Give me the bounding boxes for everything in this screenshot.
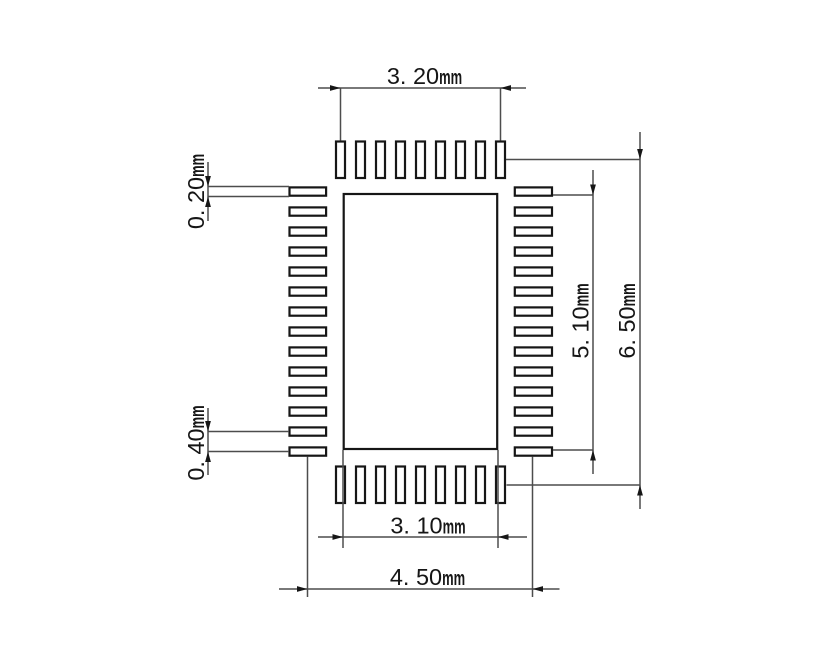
svg-text:0. 40mm: 0. 40mm [183, 405, 209, 480]
svg-text:0. 20mm: 0. 20mm [183, 154, 209, 229]
svg-text:5. 10mm: 5. 10mm [568, 283, 594, 358]
svg-text:3. 10mm: 3. 10mm [390, 513, 465, 539]
svg-text:6. 50mm: 6. 50mm [614, 283, 640, 358]
svg-text:3. 20mm: 3. 20mm [387, 63, 462, 89]
svg-text:4. 50mm: 4. 50mm [390, 564, 465, 590]
